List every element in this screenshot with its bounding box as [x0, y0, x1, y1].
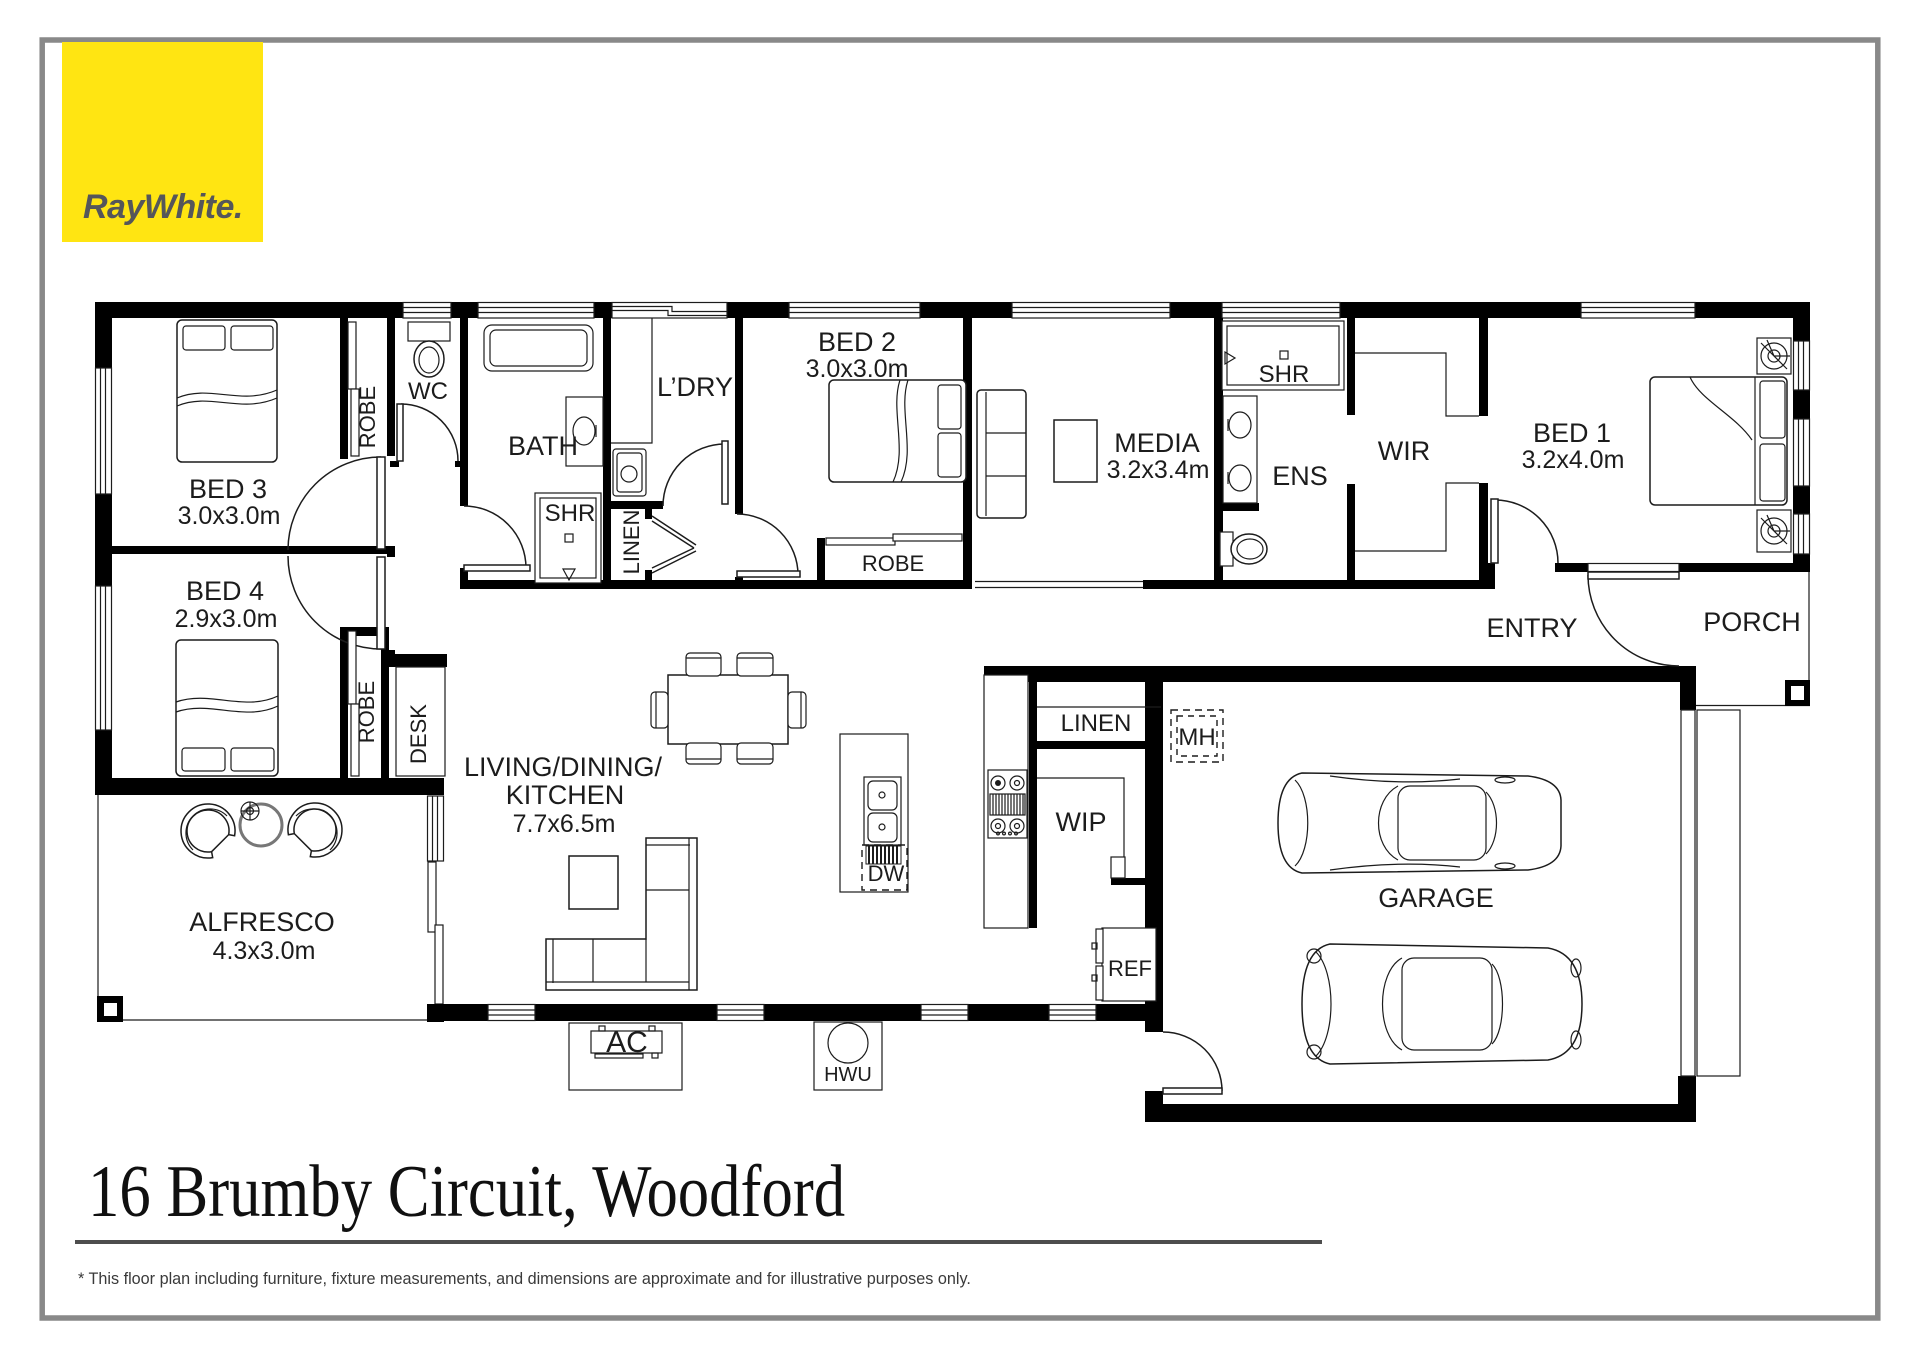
svg-text:SHR: SHR	[545, 500, 596, 527]
svg-text:SHR: SHR	[1259, 361, 1310, 388]
svg-text:DW: DW	[868, 861, 905, 886]
svg-text:LINEN: LINEN	[1061, 710, 1132, 737]
svg-text:LINEN: LINEN	[619, 510, 644, 575]
svg-text:7.7x6.5m: 7.7x6.5m	[513, 810, 616, 838]
svg-text:HWU: HWU	[824, 1064, 872, 1086]
svg-text:ENTRY: ENTRY	[1486, 613, 1577, 643]
svg-text:RayWhite.: RayWhite.	[83, 188, 243, 226]
svg-text:WIR: WIR	[1378, 436, 1430, 466]
svg-text:MEDIA: MEDIA	[1114, 428, 1200, 458]
svg-text:BED 4: BED 4	[186, 576, 264, 606]
svg-text:MH: MH	[1178, 724, 1215, 751]
svg-text:3.2x3.4m: 3.2x3.4m	[1107, 456, 1210, 484]
svg-text:ROBE: ROBE	[354, 681, 379, 743]
svg-text:DESK: DESK	[406, 704, 431, 764]
svg-text:BED 1: BED 1	[1533, 418, 1611, 448]
svg-text:WIP: WIP	[1056, 807, 1107, 837]
svg-text:3.0x3.0m: 3.0x3.0m	[178, 502, 281, 530]
svg-text:PORCH: PORCH	[1703, 607, 1801, 637]
svg-text:3.2x4.0m: 3.2x4.0m	[1522, 446, 1625, 474]
svg-text:ROBE: ROBE	[862, 551, 924, 576]
svg-text:3.0x3.0m: 3.0x3.0m	[806, 355, 909, 383]
svg-text:BATH: BATH	[508, 431, 578, 461]
svg-text:L’DRY: L’DRY	[657, 372, 733, 402]
svg-text:ROBE: ROBE	[355, 386, 380, 448]
svg-text:4.3x3.0m: 4.3x3.0m	[213, 937, 316, 965]
svg-text:REF: REF	[1108, 956, 1152, 981]
svg-text:2.9x3.0m: 2.9x3.0m	[175, 605, 278, 633]
svg-text:* This floor plan including fu: * This floor plan including furniture, f…	[78, 1270, 971, 1288]
svg-text:LIVING/DINING/: LIVING/DINING/	[464, 752, 663, 782]
svg-text:BED 3: BED 3	[189, 474, 267, 504]
svg-text:AC: AC	[606, 1026, 648, 1059]
svg-text:KITCHEN: KITCHEN	[506, 780, 625, 810]
svg-text:BED 2: BED 2	[818, 327, 896, 357]
svg-text:GARAGE: GARAGE	[1378, 883, 1494, 913]
svg-text:16 Brumby Circuit, Woodford: 16 Brumby Circuit, Woodford	[88, 1150, 845, 1232]
svg-text:WC: WC	[408, 378, 448, 405]
svg-text:ENS: ENS	[1272, 461, 1328, 491]
svg-text:ALFRESCO: ALFRESCO	[189, 907, 335, 937]
